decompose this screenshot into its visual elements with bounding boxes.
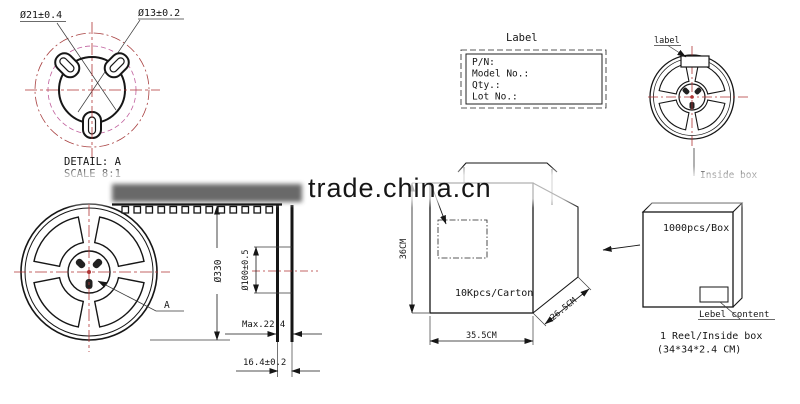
reel-front-view: A Ø330 bbox=[14, 204, 230, 352]
label-callout: label bbox=[654, 36, 680, 46]
reel-side-view: Ø100±0.5 Max.22.4 16.4±0.2 bbox=[225, 205, 322, 377]
dim-reel-diameter: Ø330 bbox=[150, 206, 230, 340]
svg-text:16.4±0.2: 16.4±0.2 bbox=[243, 358, 286, 368]
packaging-spec-drawing: Ø21±0.4 Ø13±0.2 DETAIL: A SCALE 8:1 A Ø3… bbox=[0, 0, 800, 404]
label-field-lot: Lot No.: bbox=[472, 92, 518, 103]
dim-max-width: Max.22.4 bbox=[225, 320, 322, 334]
dim-carton-width: 35.5CM bbox=[430, 316, 533, 345]
label-field-qty: Qty.: bbox=[472, 80, 501, 91]
dim-hub-hole: Ø13±0.2 bbox=[138, 7, 180, 19]
label-field-pn: P/N: bbox=[472, 57, 495, 68]
reel-centerlines bbox=[14, 204, 170, 352]
inside-box-view: 1000pcs/Box Lebel content 1 Reel/Inside … bbox=[643, 203, 775, 356]
drawing-canvas: Ø21±0.4 Ø13±0.2 DETAIL: A SCALE 8:1 A Ø3… bbox=[0, 0, 800, 404]
svg-text:Max.22.4: Max.22.4 bbox=[242, 320, 285, 330]
box-into-carton-arrow bbox=[603, 245, 640, 250]
reel-label-sticker bbox=[681, 56, 709, 67]
label-content-callout: Lebel content bbox=[699, 310, 769, 320]
carrier-tape-blur bbox=[112, 184, 302, 202]
detail-a-view: Ø21±0.4 Ø13±0.2 DETAIL: A SCALE 8:1 bbox=[20, 7, 184, 180]
svg-text:Ø100±0.5: Ø100±0.5 bbox=[240, 250, 251, 291]
detail-ref-leader bbox=[98, 281, 184, 311]
dim-inner-width: 16.4±0.2 bbox=[236, 342, 320, 377]
inside-box-capacity: 1000pcs/Box bbox=[663, 223, 729, 234]
dim-hub-diameter: Ø100±0.5 bbox=[240, 247, 292, 293]
label-field-model: Model No.: bbox=[472, 69, 529, 80]
label-callout-leader bbox=[668, 46, 686, 58]
reel-with-label-view: label Inside box bbox=[648, 36, 757, 181]
svg-text:26.5CM: 26.5CM bbox=[549, 296, 579, 323]
label-box-title: Label bbox=[506, 32, 538, 44]
watermark-text: trade.china.cn bbox=[308, 173, 492, 203]
svg-text:Ø330: Ø330 bbox=[213, 259, 224, 282]
inside-box-note-2: (34*34*2.4 CM) bbox=[657, 345, 741, 356]
svg-text:35.5CM: 35.5CM bbox=[466, 331, 497, 341]
inside-box-note-1: 1 Reel/Inside box bbox=[660, 331, 762, 342]
shipping-label-box: Label P/N: Model No.: Qty.: Lot No.: bbox=[461, 32, 606, 108]
detail-ref-label: A bbox=[164, 300, 170, 311]
dim-hub-outer: Ø21±0.4 bbox=[20, 9, 62, 21]
dim-carton-depth: 26.5CM bbox=[533, 277, 591, 326]
carton-capacity: 10Kpcs/Carton bbox=[455, 288, 533, 299]
svg-text:36CM: 36CM bbox=[399, 239, 409, 259]
